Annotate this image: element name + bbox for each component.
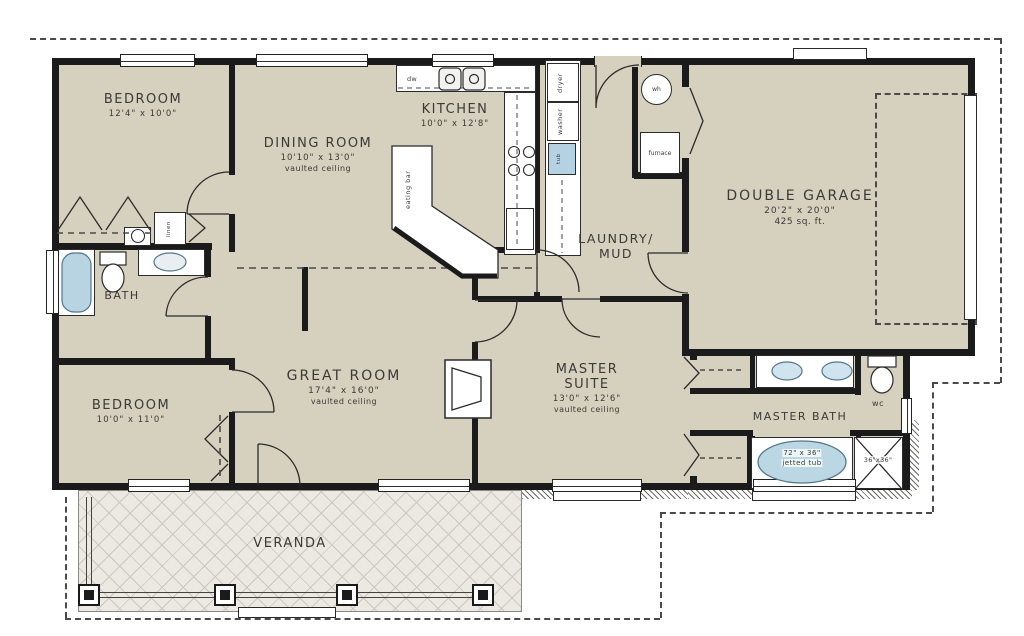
refrigerator: [506, 208, 534, 250]
roofline-left: [65, 497, 67, 618]
room-label-bath: BATH: [104, 289, 139, 302]
wall-garage-right-top: [968, 58, 975, 97]
garage-note: 425 sq. ft.: [726, 217, 873, 227]
dining-note: vaulted ceiling: [264, 164, 373, 173]
door-opening-laundry-back: [594, 56, 642, 67]
room-label-bedroom2: BEDROOM 10'0" x 11'0": [92, 398, 170, 425]
window-kitchen: [432, 54, 494, 67]
masterbath-name: MASTER BATH: [753, 410, 848, 423]
bedroom1-dims: 12'4" x 10'0": [104, 109, 182, 119]
veranda-column-2: [214, 584, 236, 606]
jetted-tub-size-label: 72" x 36": [782, 449, 821, 457]
furnace: furnace: [640, 132, 680, 174]
room-label-master: MASTER SUITE 13'0" x 12'6" vaulted ceili…: [553, 362, 621, 414]
veranda-rail-left1: [86, 497, 87, 597]
room-label-garage: DOUBLE GARAGE 20'2" x 20'0" 425 sq. ft.: [726, 188, 873, 227]
bedroom1-name: BEDROOM: [104, 92, 182, 107]
wall-bedroom2-east-upper: [229, 358, 235, 370]
jetted-tub-label: jetted tub: [781, 459, 822, 467]
room-label-dining: DINING ROOM 10'10" x 13'0" vaulted ceili…: [264, 136, 373, 173]
bedroom2-name: BEDROOM: [92, 398, 170, 413]
wall-bedroom2-east-lower: [229, 412, 235, 483]
laundry-tub: [548, 143, 576, 175]
garage-door-dashed-outline: [875, 93, 977, 325]
roofline-bottom-right: [660, 512, 932, 514]
hall-niche: [124, 227, 151, 246]
veranda-rail-top: [90, 592, 472, 593]
room-label-laundry: LAUNDRY/ MUD: [578, 231, 654, 261]
wall-garage-west-low: [682, 294, 689, 356]
wall-mastersuite-east-top: [690, 349, 697, 360]
wall-mastersuite-east-mid2: [690, 430, 697, 436]
wall-bedroom1-east-upper: [229, 58, 235, 175]
wall-furnace-west: [632, 58, 638, 178]
masterbath-vanity: [756, 355, 854, 388]
wall-mud-south-west: [478, 296, 562, 302]
room-label-great: GREAT ROOM 17'4" x 16'0" vaulted ceiling: [287, 368, 402, 406]
window-jetted-tub: [753, 479, 856, 492]
wall-bath-east-lower: [205, 316, 211, 364]
laundry-tub-label: tub: [556, 147, 562, 171]
roofline-veranda-right: [660, 512, 662, 618]
kitchen-dims: 10'0" x 12'8": [421, 119, 489, 129]
washer-label: washer: [556, 105, 564, 139]
roofline-step-h: [932, 382, 1000, 384]
wall-greatroom-east-lower: [472, 342, 478, 483]
master-line1: MASTER: [553, 362, 621, 377]
veranda-step: [238, 607, 336, 618]
wall-bedroom1-east-lower: [229, 214, 235, 252]
room-label-masterbath: MASTER BATH: [753, 410, 848, 423]
roofline-top: [30, 38, 1000, 40]
wall-hall-stub: [302, 267, 308, 331]
master-dims: 13'0" x 12'6": [553, 394, 621, 404]
garage-dims: 20'2" x 20'0": [726, 206, 873, 216]
linen-label: linen: [166, 215, 172, 243]
garage-roof-vent: [793, 48, 867, 60]
window-bedroom1: [120, 54, 195, 67]
wall-bath-east-upper: [205, 247, 211, 277]
veranda-rail-left2: [91, 497, 92, 597]
floor-plan: dw dryer washer tub wh furnace linen: [0, 0, 1024, 636]
window-wc: [901, 398, 912, 434]
wall-masterbath-hall-north: [697, 388, 858, 394]
garage-side-door: [964, 95, 977, 320]
dryer-label: dryer: [556, 66, 564, 100]
dining-dims: 10'10" x 13'0": [264, 153, 373, 163]
dishwasher-label: dw: [407, 75, 417, 83]
bath-name: BATH: [104, 289, 139, 302]
wall-greatroom-east-upper: [472, 268, 478, 300]
room-label-veranda: VERANDA: [253, 536, 326, 551]
wall-closet2-north: [697, 430, 753, 436]
laundry-line1: LAUNDRY/: [578, 231, 654, 246]
room-label-wc: wc: [872, 399, 884, 408]
veranda-rail-bottom: [90, 597, 472, 598]
window-bedroom2: [128, 479, 190, 492]
wall-bedroom2-north: [52, 358, 235, 365]
room-label-bedroom1: BEDROOM 12'4" x 10'0": [104, 92, 182, 119]
wall-mud-south-east: [600, 296, 689, 302]
great-name: GREAT ROOM: [287, 368, 402, 384]
great-dims: 17'4" x 16'0": [287, 386, 402, 396]
room-label-kitchen: KITCHEN 10'0" x 12'8": [421, 102, 489, 129]
bathtub-surround: [58, 249, 95, 316]
great-note: vaulted ceiling: [287, 397, 402, 406]
dining-name: DINING ROOM: [264, 136, 373, 151]
veranda-column-4: [472, 584, 494, 606]
kitchen-name: KITCHEN: [421, 102, 489, 117]
veranda-deck: [78, 490, 522, 612]
window-bath: [46, 250, 59, 314]
wall-mastersuite-east-bot: [690, 476, 697, 490]
roofline-bottom: [65, 618, 660, 620]
shower-size-label: 36"x36": [863, 456, 893, 464]
bath-vanity: [138, 249, 205, 276]
bedroom2-dims: 10'0" x 11'0": [92, 415, 170, 425]
water-heater: wh: [641, 74, 672, 105]
wall-garage-west-top: [682, 58, 689, 87]
eating-bar-label: eating bar: [404, 155, 412, 225]
wall-closet1-east: [750, 355, 755, 393]
master-note: vaulted ceiling: [553, 405, 621, 414]
wc-name: wc: [872, 399, 884, 408]
veranda-column-1: [78, 584, 100, 606]
window-greatroom: [378, 479, 470, 492]
wall-mastersuite-east-mid1: [690, 388, 697, 394]
roofline-step-v: [932, 382, 934, 512]
veranda-name: VERANDA: [253, 536, 326, 551]
roofline-right: [1000, 38, 1002, 383]
wall-vanity-wc-divider: [855, 355, 861, 395]
window-dining: [256, 54, 368, 67]
laundry-line2: MUD: [578, 246, 654, 261]
window-mastersuite: [552, 479, 642, 492]
veranda-column-3: [336, 584, 358, 606]
master-line2: SUITE: [553, 377, 621, 392]
garage-name: DOUBLE GARAGE: [726, 188, 873, 204]
